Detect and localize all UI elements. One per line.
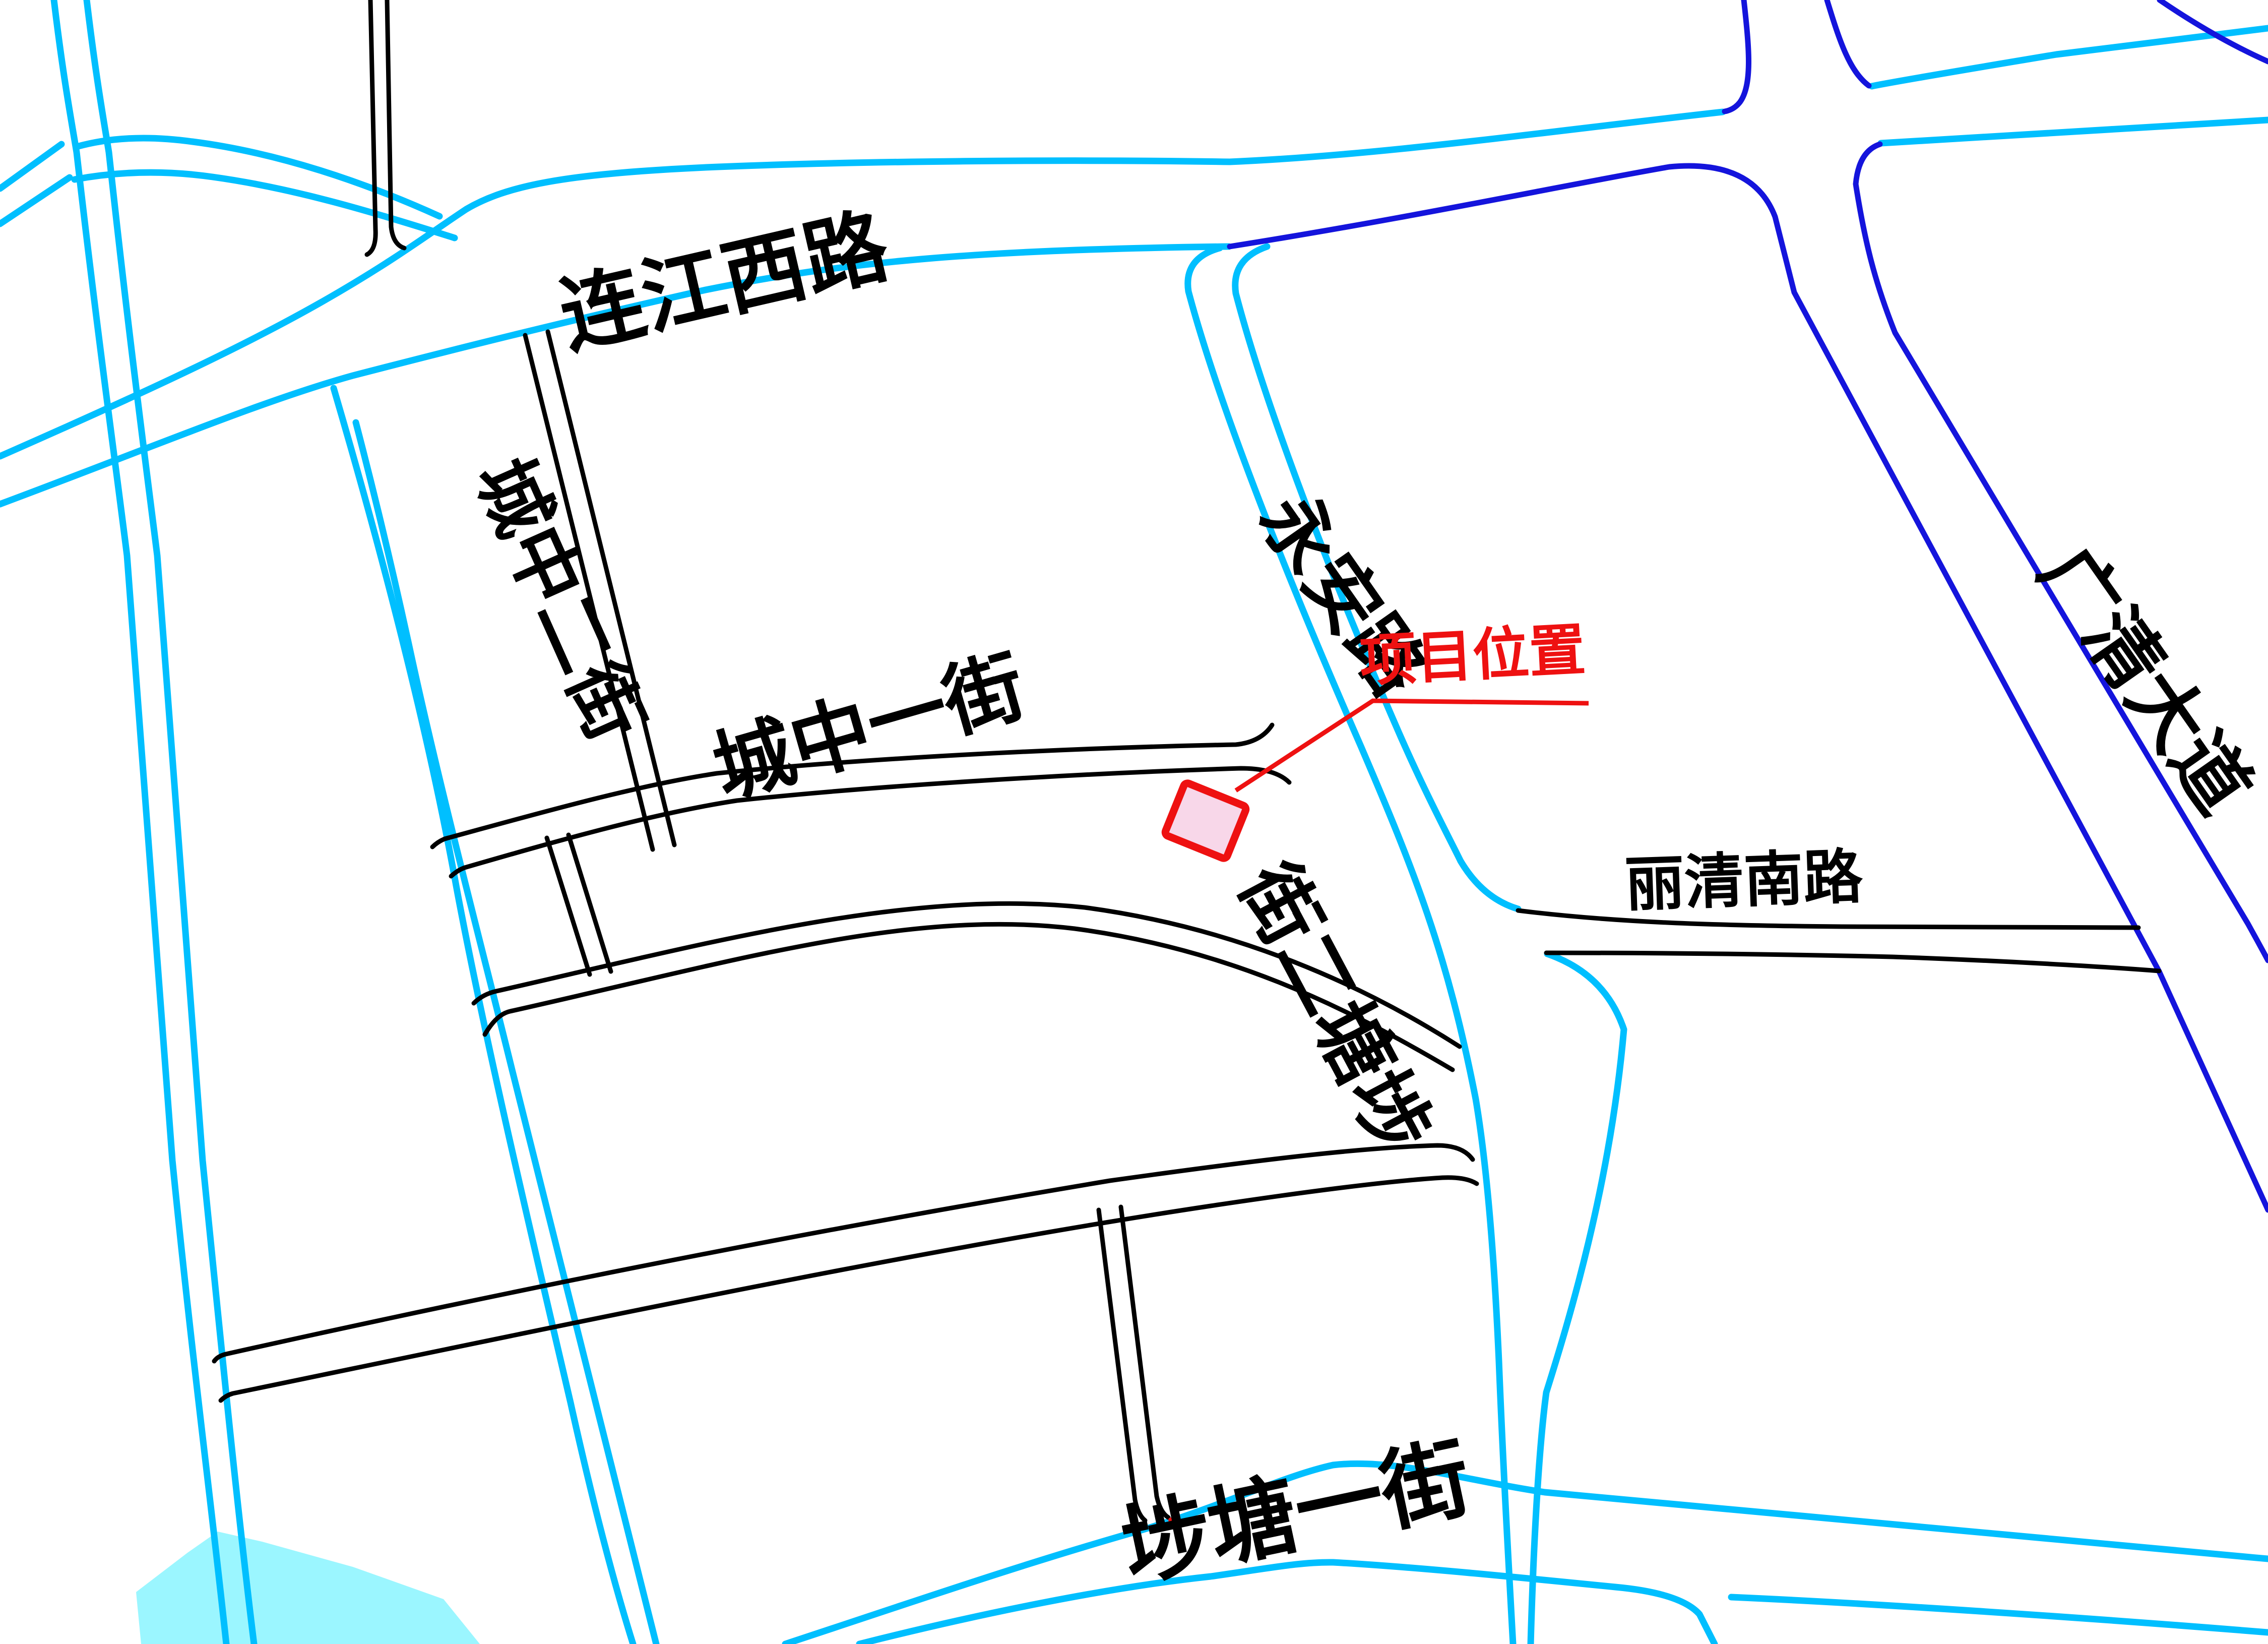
label-chengzhongerjie: 城中二街 [460, 447, 657, 753]
road-west-stub-upper-line [0, 144, 61, 189]
cyan-roads [0, 0, 2268, 1644]
road-far-west-right-line [87, 0, 254, 1644]
road-guangqingdadao-northeast-curve [1827, 0, 1869, 86]
street-row-d-south-line [221, 1178, 1477, 1401]
black-streets [214, 0, 2159, 1520]
street-column-b-left-line [547, 838, 590, 975]
pond-polygon [136, 1532, 480, 1644]
label-project-location: 项目位置 [1358, 619, 1587, 693]
road-guangqingdadao-northwest-curve [1725, 0, 1749, 111]
street-liqingnanlu-north-line [1518, 910, 2138, 928]
road-labels: 连江西路 城中二街 城中一街 永安路 街二塘埗 埗塘一街 丽清南路 广清大道 项… [460, 200, 2265, 1598]
street-column-b-right-line [569, 835, 611, 971]
road-butangyijie-south-line-east [1731, 1597, 2268, 1632]
road-guangqingdadao-east-line [1856, 144, 2268, 960]
street-column-e-left-line [1099, 1210, 1145, 1520]
map-canvas: 连江西路 城中二街 城中一街 永安路 街二塘埗 埗塘一街 丽清南路 广清大道 项… [0, 0, 2268, 1644]
marker-site-rectangle [1164, 782, 1247, 859]
water-area [136, 1532, 480, 1644]
road-far-west-left-line [54, 0, 226, 1644]
street-row-d-north-line [214, 1145, 1473, 1361]
street-column-e-right-line [1121, 1207, 1168, 1517]
road-northwest-branch-upper-line [77, 138, 439, 216]
road-northwest-branch-lower-line [75, 172, 455, 238]
street-north-stub-right-line [387, 0, 404, 248]
marker-leader-line [1236, 701, 1589, 790]
street-liqingnanlu-south-line [1546, 953, 2159, 971]
label-liqingnanlu: 丽清南路 [1624, 844, 1864, 918]
label-butangerjie: 街二塘埗 [1223, 849, 1446, 1167]
road-yonganlu-right-line-south [1531, 954, 1624, 1644]
road-northeast-lower-line [1881, 120, 2268, 143]
road-northeast-upper-line [1872, 28, 2268, 86]
road-west-diagonal-right-line [356, 422, 656, 1644]
street-north-stub-left-line [367, 0, 375, 255]
label-lianjiangxilu: 连江西路 [552, 200, 897, 364]
location-map: 连江西路 城中二街 城中一街 永安路 街二塘埗 埗塘一街 丽清南路 广清大道 项… [0, 0, 2268, 1644]
label-butangyijie: 埗塘一街 [1113, 1429, 1479, 1598]
